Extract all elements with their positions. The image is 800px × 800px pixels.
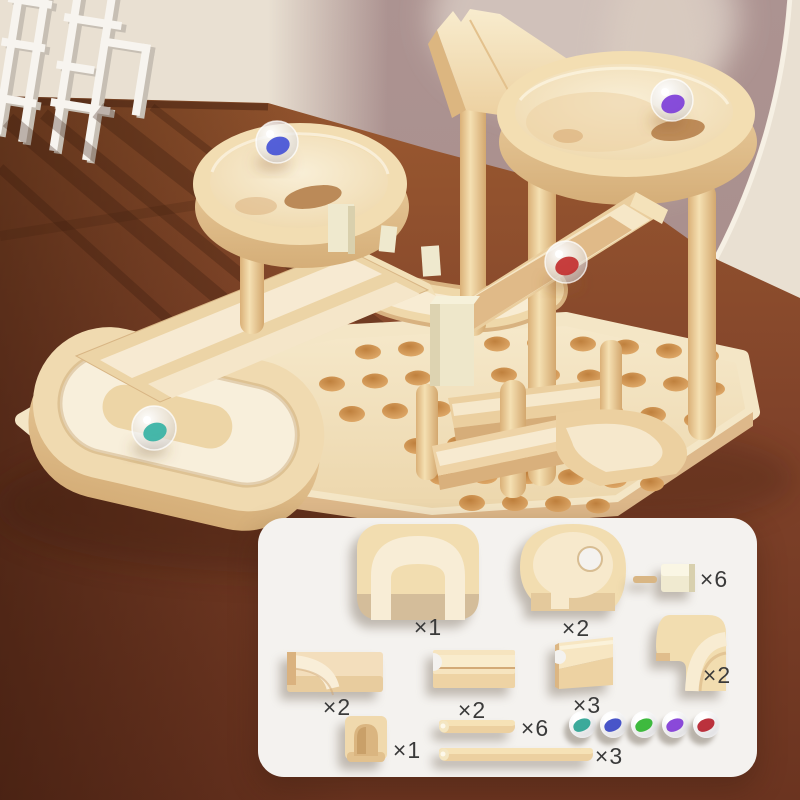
qty-arch-block: ×1 [393, 739, 421, 762]
qty-long-dowel: ×3 [595, 745, 623, 768]
support-dowel [416, 384, 438, 480]
product-photo-wooden-marble-run: ×1 ×2 ×6 ×2 ×2 ×3 ×2 ×1 ×6 ×3 [0, 0, 800, 800]
marble-thumb-red [693, 711, 720, 738]
long-dowel-thumb [437, 746, 595, 769]
parts-list-panel: ×1 ×2 ×6 ×2 ×2 ×3 ×2 ×1 ×6 ×3 [258, 518, 757, 777]
straight-channel-thumb [433, 648, 515, 697]
left-round-tray [193, 123, 409, 268]
arch-block-thumb [345, 716, 387, 769]
marble-thumb-green [631, 711, 658, 738]
qty-clip-connector: ×6 [700, 568, 728, 591]
qty-slope-ramp: ×3 [573, 694, 601, 717]
qty-round-tray: ×2 [562, 617, 590, 640]
qty-corner-channel: ×2 [703, 664, 731, 687]
slope-ramp-thumb [555, 635, 615, 698]
marble-thumb-blue [600, 711, 627, 738]
qty-curve-chute: ×2 [323, 696, 351, 719]
marble-thumb-purple [662, 711, 689, 738]
big-round-tray [497, 51, 757, 205]
tray-hole [578, 547, 602, 571]
round-tray-thumb [517, 523, 629, 623]
qty-arch-end-tray: ×1 [414, 616, 442, 639]
qty-straight-channel: ×2 [458, 699, 486, 722]
clip-connector-thumb [633, 560, 705, 601]
qty-short-dowel: ×6 [521, 717, 549, 740]
big-tray-leg-right [688, 182, 716, 440]
arch-end-tray-thumb [357, 524, 479, 625]
